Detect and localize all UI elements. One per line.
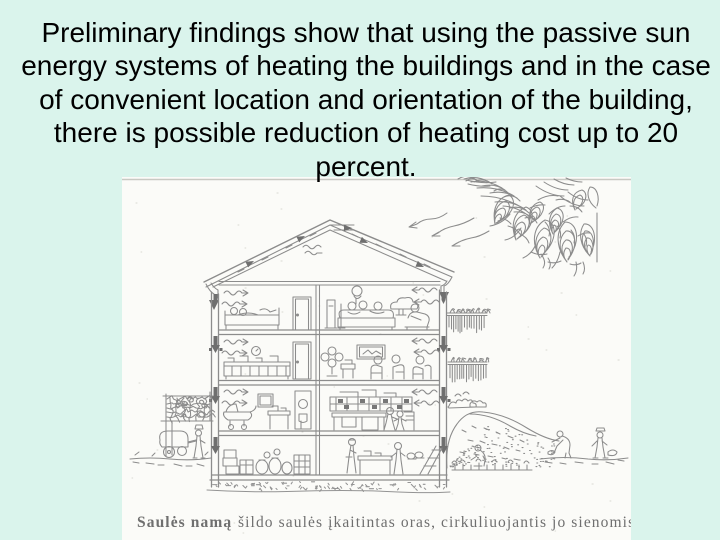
svg-text:Saulės namą: Saulės namą	[137, 514, 232, 531]
svg-text:šildo saulės įkaitintas oras,: šildo saulės įkaitintas oras, cirkuliuoj…	[238, 514, 631, 531]
